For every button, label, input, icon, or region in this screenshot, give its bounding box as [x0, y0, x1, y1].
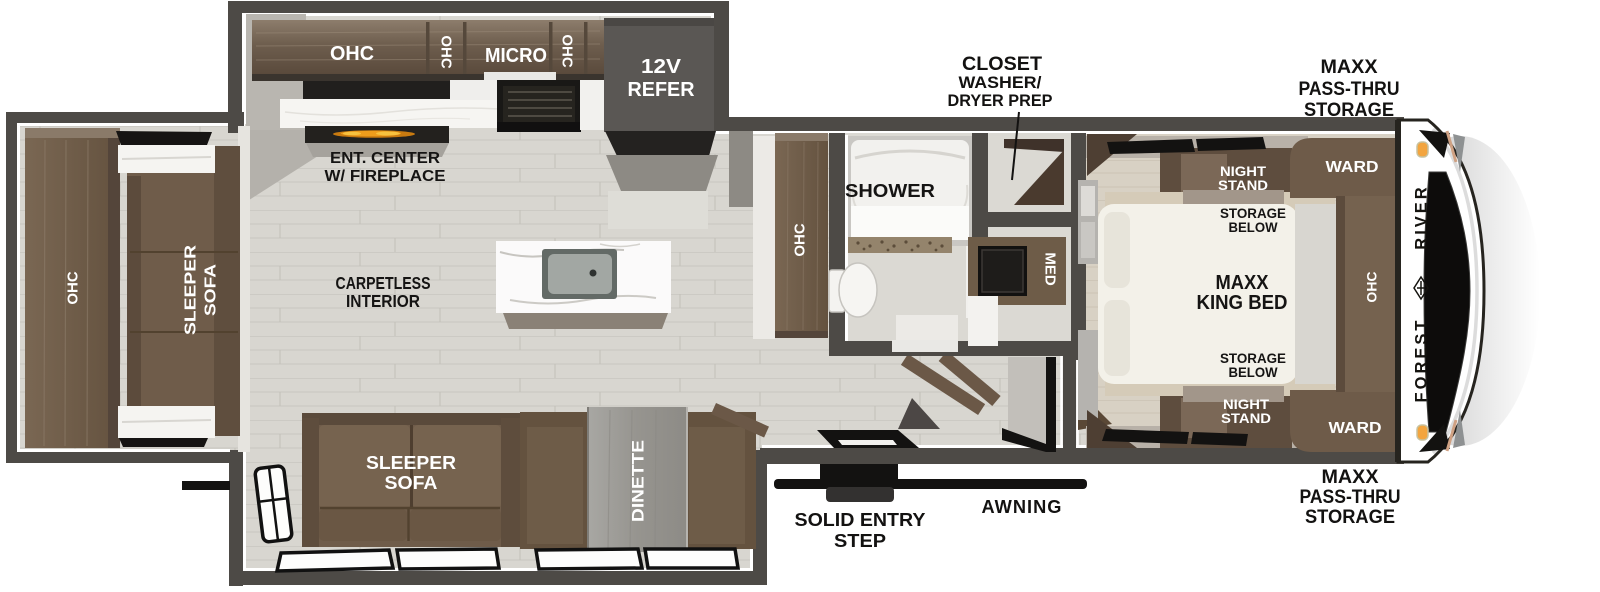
- svg-text:OHC: OHC: [1364, 271, 1380, 302]
- svg-text:SLEEPER: SLEEPER: [366, 453, 456, 473]
- svg-text:FOREST: FOREST: [1413, 318, 1431, 403]
- svg-text:MED: MED: [1042, 252, 1059, 286]
- svg-text:SHOWER: SHOWER: [845, 181, 935, 201]
- svg-text:STORAGE: STORAGE: [1305, 507, 1395, 528]
- svg-text:PASS-THRU: PASS-THRU: [1300, 487, 1401, 508]
- svg-text:MAXX: MAXX: [1216, 272, 1270, 294]
- svg-text:DRYER PREP: DRYER PREP: [948, 92, 1053, 110]
- svg-text:MAXX: MAXX: [1322, 467, 1379, 488]
- svg-text:INTERIOR: INTERIOR: [346, 291, 420, 311]
- svg-text:PASS-THRU: PASS-THRU: [1299, 79, 1400, 100]
- svg-text:OHC: OHC: [438, 35, 455, 69]
- svg-text:STEP: STEP: [834, 531, 886, 551]
- svg-text:OHC: OHC: [792, 223, 809, 257]
- svg-text:W/ FIREPLACE: W/ FIREPLACE: [325, 168, 446, 185]
- svg-text:BELOW: BELOW: [1229, 220, 1278, 235]
- svg-text:STORAGE: STORAGE: [1220, 206, 1286, 221]
- svg-text:12V: 12V: [641, 56, 682, 78]
- svg-text:OHC: OHC: [559, 34, 576, 68]
- svg-text:NIGHT: NIGHT: [1223, 397, 1270, 412]
- svg-text:KING BED: KING BED: [1197, 292, 1288, 314]
- svg-text:OHC: OHC: [330, 43, 374, 65]
- svg-text:BELOW: BELOW: [1229, 365, 1278, 380]
- svg-text:MICRO: MICRO: [485, 45, 547, 67]
- svg-text:WARD: WARD: [1326, 159, 1379, 176]
- svg-text:STORAGE: STORAGE: [1304, 100, 1394, 121]
- svg-text:SOFA: SOFA: [385, 473, 438, 493]
- svg-text:SOLID ENTRY: SOLID ENTRY: [795, 510, 926, 530]
- svg-text:MAXX: MAXX: [1321, 57, 1378, 78]
- svg-text:REFER: REFER: [628, 79, 696, 101]
- svg-text:OHC: OHC: [65, 271, 82, 305]
- svg-text:NIGHT: NIGHT: [1220, 164, 1267, 179]
- svg-text:SOFA: SOFA: [203, 263, 220, 316]
- svg-text:STAND: STAND: [1218, 178, 1268, 193]
- svg-text:CLOSET: CLOSET: [962, 54, 1042, 75]
- svg-text:CARPETLESS: CARPETLESS: [336, 273, 431, 293]
- svg-text:RIVER: RIVER: [1413, 184, 1431, 249]
- svg-text:STORAGE: STORAGE: [1220, 351, 1286, 366]
- svg-text:ENT. CENTER: ENT. CENTER: [330, 150, 440, 167]
- svg-text:DINETTE: DINETTE: [629, 440, 648, 522]
- svg-text:STAND: STAND: [1221, 411, 1271, 426]
- svg-text:SLEEPER: SLEEPER: [183, 244, 200, 335]
- svg-text:WASHER/: WASHER/: [959, 74, 1042, 92]
- svg-text:WARD: WARD: [1329, 420, 1382, 437]
- svg-text:AWNING: AWNING: [982, 497, 1063, 517]
